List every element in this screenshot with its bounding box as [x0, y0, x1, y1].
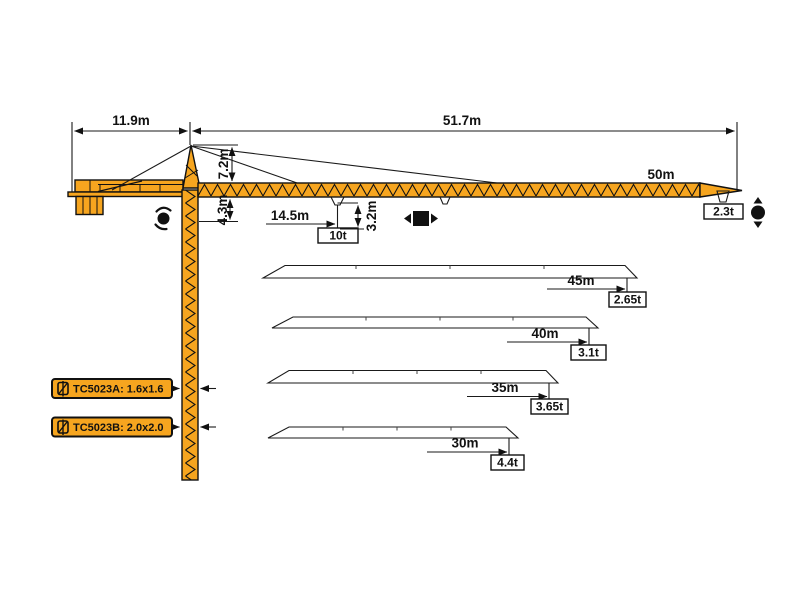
- jib-outline-30m: [268, 427, 518, 438]
- jib-tie-2: [191, 146, 497, 183]
- tip-load-label: 2.3t: [713, 205, 734, 219]
- variant-40m-load-label: 3.1t: [578, 346, 599, 360]
- load-capacity-label: 10t: [329, 229, 346, 243]
- crane-diagram-page: 11.9m 51.7m: [0, 0, 800, 600]
- tip-load: 2.3t: [704, 204, 743, 219]
- variant-35m-load-label: 3.65t: [536, 400, 563, 414]
- variant-35m-length-label: 35m: [491, 380, 518, 395]
- variant-30m-load-label: 4.4t: [497, 456, 518, 470]
- trolley-travel-icon: [404, 211, 438, 226]
- jib-variant-40m: 40m 3.1t: [272, 317, 606, 360]
- counterweight: [76, 197, 103, 215]
- jib-variant-35m: 35m 3.65t: [268, 371, 568, 415]
- trolley-hook-2: [440, 197, 450, 204]
- counter-jib-length-label: 11.9m: [112, 113, 150, 128]
- head-height-label: 7.2m: [216, 149, 231, 180]
- jib-variant-45m: 45m 2.65t: [263, 266, 646, 308]
- variant-30m-length-label: 30m: [451, 436, 478, 451]
- jib-tip: [700, 183, 742, 197]
- tower-head: [183, 145, 200, 188]
- crane-diagram: 11.9m 51.7m: [0, 0, 800, 600]
- tower-mast: [182, 190, 198, 480]
- load-radius-label: 14.5m: [271, 208, 309, 223]
- counter-jib: [68, 180, 183, 215]
- dim-load-radius: 14.5m 10t: [266, 205, 358, 243]
- jib-tie-1: [191, 146, 300, 184]
- dim-hook-height: 3.2m: [338, 201, 380, 232]
- variant-45m-load-label: 2.65t: [614, 293, 641, 307]
- counter-jib-girder: [75, 180, 183, 192]
- under-jib-height-label: 4.3m: [215, 195, 230, 226]
- main-jib-length-label: 51.7m: [443, 113, 481, 128]
- jib-variant-30m: 30m 4.4t: [268, 427, 524, 470]
- jib-50m-label: 50m: [647, 167, 674, 182]
- trolley-hook-1: [331, 197, 344, 205]
- hoist-icon: [751, 197, 765, 228]
- slewing-icon: [156, 208, 171, 229]
- hook-height-label: 3.2m: [364, 201, 379, 232]
- model-a-label: TC5023A: 1.6x1.6: [73, 384, 164, 396]
- model-b-label: TC5023B: 2.0x2.0: [73, 422, 164, 434]
- main-jib: 50m: [198, 167, 742, 205]
- dim-under-jib: 4.3m: [199, 195, 238, 226]
- variant-40m-length-label: 40m: [531, 326, 558, 341]
- variant-45m-length-label: 45m: [567, 273, 594, 288]
